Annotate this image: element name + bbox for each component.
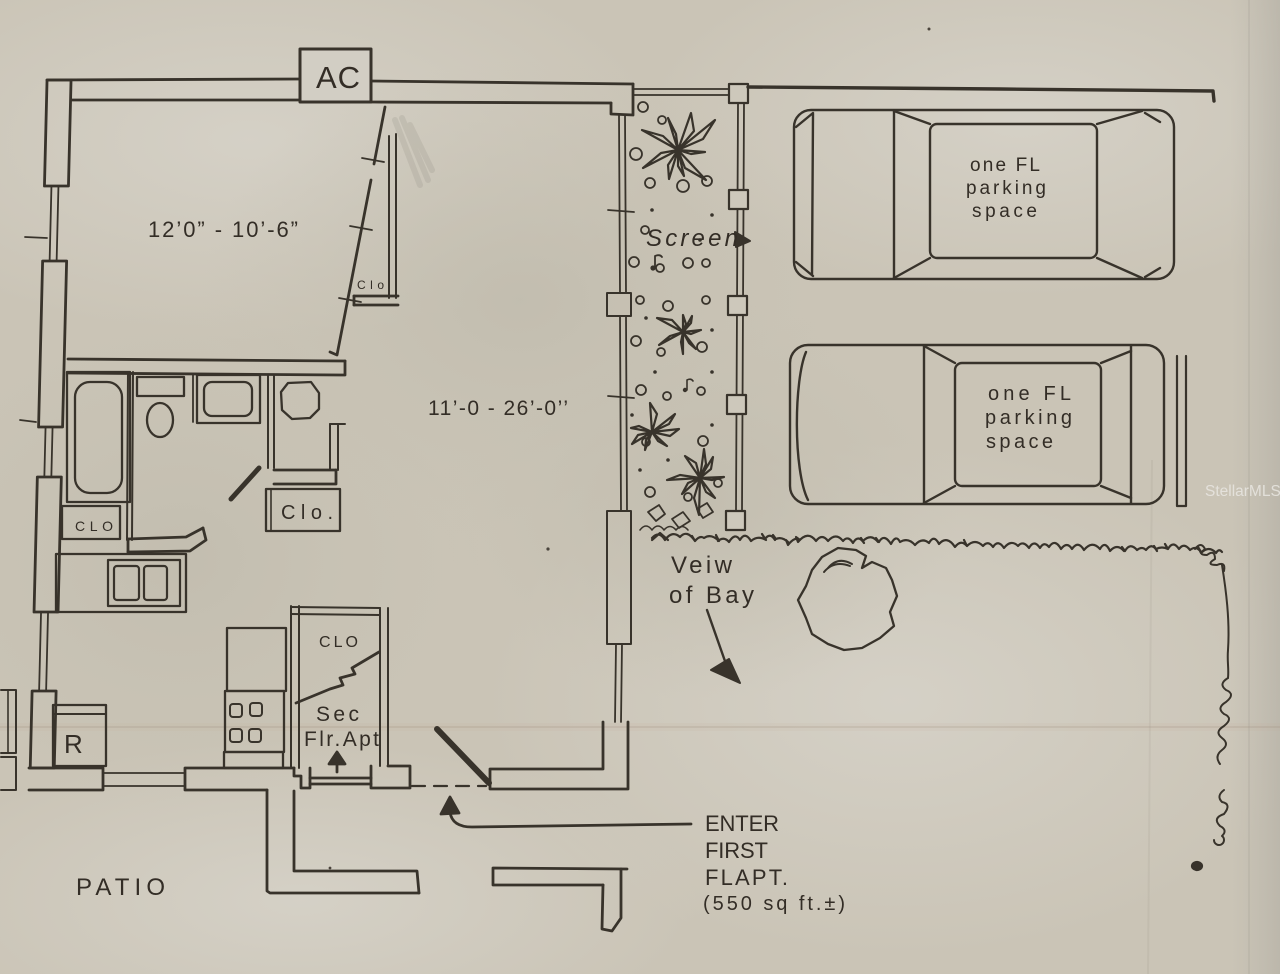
svg-text:one FL: one FL xyxy=(970,155,1040,176)
svg-text:FLAPT.: FLAPT. xyxy=(705,865,788,890)
svg-text:Clo: Clo xyxy=(357,278,384,292)
svg-text:Screen: Screen xyxy=(646,225,738,252)
svg-text:of Bay: of Bay xyxy=(669,582,754,609)
svg-text:11’-0 - 26’-0’’: 11’-0 - 26’-0’’ xyxy=(428,397,569,420)
svg-text:StellarMLS: StellarMLS xyxy=(1205,483,1280,500)
svg-text:R: R xyxy=(64,729,83,759)
svg-text:CLO: CLO xyxy=(75,518,113,534)
svg-text:FIRST: FIRST xyxy=(705,838,768,863)
svg-text:CLO: CLO xyxy=(319,634,358,651)
svg-text:ENTER: ENTER xyxy=(705,811,779,836)
svg-text:AC: AC xyxy=(316,60,361,95)
svg-text:Sec: Sec xyxy=(316,703,359,726)
svg-text:Veiw: Veiw xyxy=(671,552,733,579)
svg-text:PATIO: PATIO xyxy=(76,874,165,901)
svg-text:12’0” - 10’-6”: 12’0” - 10’-6” xyxy=(148,217,299,242)
